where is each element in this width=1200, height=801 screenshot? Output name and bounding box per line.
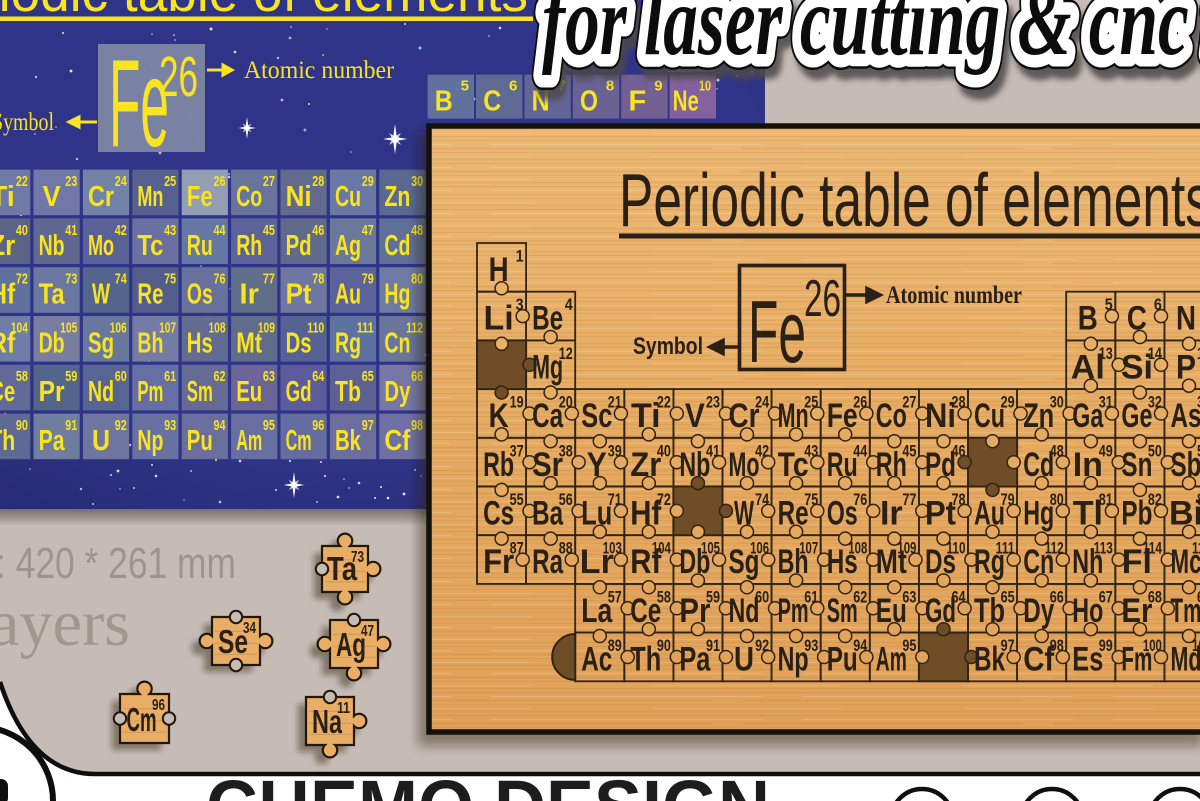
svg-text:96: 96 — [152, 697, 165, 714]
svg-text:Am: Am — [236, 425, 262, 457]
svg-text:W: W — [734, 495, 755, 533]
svg-text:106: 106 — [750, 540, 769, 558]
svg-text:Ne: Ne — [673, 86, 699, 118]
svg-text:Y: Y — [587, 446, 607, 484]
svg-text:72: 72 — [657, 491, 671, 509]
svg-text:Symbol: Symbol — [0, 109, 54, 136]
svg-text:92: 92 — [115, 417, 127, 434]
svg-text:93: 93 — [164, 417, 176, 434]
svg-text:58: 58 — [16, 368, 28, 385]
svg-text:Eu: Eu — [236, 376, 262, 408]
svg-text:N: N — [532, 86, 550, 118]
svg-text:40: 40 — [657, 442, 671, 460]
svg-text:114: 114 — [1143, 540, 1163, 558]
svg-text:32: 32 — [1148, 394, 1162, 412]
svg-text:108: 108 — [848, 540, 867, 558]
svg-text:Gd: Gd — [286, 376, 312, 408]
svg-text:56: 56 — [559, 491, 573, 509]
svg-text:63: 63 — [263, 368, 275, 385]
svg-text:24: 24 — [755, 394, 770, 412]
svg-text:Cr: Cr — [88, 181, 114, 213]
svg-text:73: 73 — [351, 549, 364, 566]
svg-text:Re: Re — [137, 279, 163, 311]
svg-text:46: 46 — [312, 222, 324, 239]
svg-text:C: C — [483, 86, 501, 118]
svg-text:40: 40 — [16, 222, 28, 239]
svg-text:B: B — [435, 86, 453, 118]
svg-text:Ti: Ti — [0, 181, 15, 213]
svg-text:60: 60 — [115, 368, 127, 385]
svg-text:104: 104 — [652, 540, 672, 558]
svg-text:63: 63 — [902, 588, 916, 606]
svg-text:Ir: Ir — [240, 279, 259, 311]
svg-text:: 420 * 261 mm: : 420 * 261 mm — [0, 539, 236, 588]
svg-text:Ag: Ag — [335, 230, 361, 262]
svg-text:96: 96 — [312, 417, 324, 434]
svg-text:Sb: Sb — [1171, 446, 1200, 484]
svg-text:for laser cutting & cnc m: for laser cutting & cnc m — [542, 0, 1200, 76]
svg-text:23: 23 — [65, 173, 77, 190]
svg-text:Sm: Sm — [187, 376, 213, 408]
svg-text:100: 100 — [1143, 637, 1162, 655]
svg-text:95: 95 — [902, 637, 916, 655]
svg-text:Atomic number: Atomic number — [886, 282, 1022, 309]
svg-text:1: 1 — [516, 248, 524, 266]
svg-text:Au: Au — [335, 279, 361, 311]
svg-text:37: 37 — [510, 442, 524, 460]
svg-text:Ni: Ni — [286, 181, 312, 213]
svg-text:68: 68 — [1148, 588, 1162, 606]
svg-text:79: 79 — [362, 271, 374, 288]
svg-text:Zr: Zr — [0, 230, 15, 262]
svg-text:97: 97 — [1001, 637, 1015, 655]
svg-text:43: 43 — [164, 222, 176, 239]
svg-text:106: 106 — [110, 319, 127, 336]
svg-text:113: 113 — [1094, 540, 1113, 558]
svg-text:Pm: Pm — [137, 376, 163, 408]
svg-text:75: 75 — [804, 491, 818, 509]
svg-text:Tm: Tm — [1171, 592, 1200, 630]
svg-text:14: 14 — [1148, 345, 1163, 363]
svg-text:22: 22 — [657, 394, 671, 412]
svg-text:74: 74 — [755, 491, 770, 509]
svg-text:P: P — [1176, 348, 1196, 386]
svg-text:81: 81 — [1099, 491, 1113, 509]
svg-text:26: 26 — [853, 394, 867, 412]
svg-text:Fe: Fe — [187, 181, 213, 213]
svg-text:76: 76 — [853, 491, 867, 509]
svg-text:109: 109 — [258, 319, 275, 336]
svg-text:89: 89 — [608, 637, 622, 655]
svg-text:Bi: Bi — [1169, 495, 1200, 533]
svg-text:107: 107 — [159, 319, 176, 336]
svg-text:Fe: Fe — [748, 282, 806, 381]
svg-text:5: 5 — [1105, 296, 1113, 314]
svg-text:41: 41 — [65, 222, 77, 239]
svg-text:Cd: Cd — [384, 230, 410, 262]
svg-text:28: 28 — [312, 173, 324, 190]
svg-text:Li: Li — [483, 300, 513, 338]
svg-text:Hg: Hg — [384, 279, 410, 311]
svg-text:Ir: Ir — [880, 495, 903, 533]
svg-text:CHEMO DESIGN: CHEMO DESIGN — [206, 765, 770, 801]
svg-text:11: 11 — [337, 700, 350, 717]
svg-text:78: 78 — [312, 271, 324, 288]
svg-text:64: 64 — [312, 368, 324, 385]
svg-text:42: 42 — [755, 442, 769, 460]
svg-text:Mo: Mo — [88, 230, 114, 262]
svg-text:91: 91 — [65, 417, 77, 434]
svg-text:62: 62 — [214, 368, 226, 385]
svg-text:61: 61 — [164, 368, 176, 385]
svg-text:Np: Np — [137, 425, 163, 457]
svg-text:24: 24 — [115, 173, 127, 190]
svg-text:Mn: Mn — [137, 181, 163, 213]
svg-text:108: 108 — [209, 319, 226, 336]
svg-text:6: 6 — [509, 78, 517, 95]
svg-text:107: 107 — [799, 540, 818, 558]
svg-text:82: 82 — [1148, 491, 1162, 509]
svg-text:60: 60 — [755, 588, 769, 606]
svg-text:80: 80 — [1050, 491, 1064, 509]
svg-text:20: 20 — [559, 394, 573, 412]
svg-text:101: 101 — [1192, 637, 1200, 655]
svg-text:97: 97 — [362, 417, 374, 434]
svg-text:76: 76 — [214, 271, 226, 288]
svg-text:98: 98 — [1050, 637, 1064, 655]
svg-text:Pt: Pt — [286, 279, 312, 311]
svg-text:50: 50 — [1148, 442, 1162, 460]
svg-text:5: 5 — [461, 78, 469, 95]
svg-text:4: 4 — [565, 296, 574, 314]
svg-text:55: 55 — [510, 491, 524, 509]
svg-text:Ta: Ta — [39, 279, 66, 311]
svg-text:Co: Co — [236, 181, 262, 213]
svg-text:Ce: Ce — [0, 376, 15, 408]
svg-text:28: 28 — [952, 394, 966, 412]
svg-text:Rh: Rh — [236, 230, 262, 262]
svg-text:73: 73 — [65, 271, 77, 288]
svg-text:ayers: ayers — [0, 587, 130, 660]
svg-text:Cm: Cm — [286, 425, 312, 457]
svg-text:92: 92 — [755, 637, 769, 655]
svg-text:N: N — [1176, 300, 1196, 338]
svg-text:19: 19 — [510, 394, 524, 412]
svg-text:93: 93 — [804, 637, 818, 655]
svg-text:26: 26 — [159, 45, 198, 109]
svg-text:31: 31 — [1099, 394, 1113, 412]
svg-text:57: 57 — [608, 588, 622, 606]
svg-text:25: 25 — [804, 394, 818, 412]
svg-text:Pd: Pd — [286, 230, 312, 262]
svg-text:6: 6 — [1154, 296, 1162, 314]
svg-text:110: 110 — [307, 319, 324, 336]
svg-text:Tb: Tb — [335, 376, 361, 408]
svg-text:64: 64 — [952, 588, 967, 606]
svg-text:103: 103 — [603, 540, 622, 558]
svg-text:Be: Be — [532, 300, 563, 338]
svg-text:72: 72 — [16, 271, 28, 288]
svg-text:Cu: Cu — [335, 181, 361, 213]
svg-text:109: 109 — [897, 540, 916, 558]
svg-text:90: 90 — [16, 417, 28, 434]
svg-text:65: 65 — [1001, 588, 1015, 606]
svg-text:Pr: Pr — [39, 376, 65, 408]
svg-text:79: 79 — [1001, 491, 1015, 509]
svg-text:111: 111 — [996, 540, 1015, 558]
svg-text:12: 12 — [559, 345, 573, 363]
svg-text:V: V — [43, 181, 62, 213]
svg-text:77: 77 — [902, 491, 916, 509]
svg-text:13: 13 — [1099, 345, 1113, 363]
svg-text:45: 45 — [263, 222, 275, 239]
svg-text:Ru: Ru — [187, 230, 213, 262]
svg-text:67: 67 — [1099, 588, 1113, 606]
svg-text:Th: Th — [0, 425, 15, 457]
svg-text:46: 46 — [952, 442, 966, 460]
svg-text:39: 39 — [608, 442, 622, 460]
svg-text:C: C — [1127, 300, 1147, 338]
svg-text:Zn: Zn — [384, 181, 410, 213]
svg-text:Nb: Nb — [39, 230, 65, 262]
svg-text:105: 105 — [60, 319, 77, 336]
svg-text:112: 112 — [1045, 540, 1064, 558]
svg-text:90: 90 — [657, 637, 671, 655]
svg-text:47: 47 — [362, 222, 374, 239]
svg-text:77: 77 — [263, 271, 275, 288]
svg-text:61: 61 — [804, 588, 818, 606]
svg-text:47: 47 — [361, 623, 374, 640]
svg-text:B: B — [1078, 300, 1098, 338]
svg-text:Tc: Tc — [137, 230, 163, 262]
svg-text:111: 111 — [357, 319, 374, 336]
svg-text:95: 95 — [263, 417, 275, 434]
svg-text:44: 44 — [214, 222, 226, 239]
svg-text:94: 94 — [853, 637, 868, 655]
svg-text:F: F — [629, 86, 647, 118]
svg-text:Bk: Bk — [335, 425, 362, 457]
svg-text:59: 59 — [65, 368, 77, 385]
svg-text:62: 62 — [853, 588, 867, 606]
svg-text:48: 48 — [1050, 442, 1064, 460]
svg-text:43: 43 — [804, 442, 818, 460]
svg-text:26: 26 — [804, 270, 841, 328]
svg-text:99: 99 — [1099, 637, 1113, 655]
svg-text:Atomic number: Atomic number — [244, 57, 395, 84]
svg-text:U: U — [734, 641, 754, 679]
svg-text:104: 104 — [11, 319, 28, 336]
svg-text:66: 66 — [1050, 588, 1064, 606]
svg-text:K: K — [489, 397, 509, 435]
svg-text:75: 75 — [164, 271, 176, 288]
svg-text:Hf: Hf — [0, 279, 15, 311]
svg-text:H: H — [489, 251, 509, 289]
svg-text:94: 94 — [214, 417, 226, 434]
svg-text:105: 105 — [701, 540, 720, 558]
svg-text:22: 22 — [16, 173, 28, 190]
svg-text:87: 87 — [510, 540, 524, 558]
svg-text:41: 41 — [706, 442, 720, 460]
svg-text:74: 74 — [115, 271, 127, 288]
svg-text:Symbol: Symbol — [633, 333, 703, 360]
svg-text:Pa: Pa — [39, 425, 66, 457]
svg-text:Periodic table of elements: Periodic table of elements — [619, 158, 1200, 242]
svg-text:58: 58 — [657, 588, 671, 606]
svg-text:42: 42 — [115, 222, 127, 239]
svg-text:Pu: Pu — [187, 425, 213, 457]
svg-text:26: 26 — [214, 173, 226, 190]
svg-text:59: 59 — [706, 588, 720, 606]
svg-text:Cf: Cf — [384, 425, 410, 457]
svg-text:23: 23 — [706, 394, 720, 412]
svg-text:115: 115 — [1192, 540, 1200, 558]
svg-text:71: 71 — [608, 491, 622, 509]
svg-text:Dy: Dy — [384, 376, 410, 408]
svg-text:29: 29 — [1001, 394, 1015, 412]
svg-text:91: 91 — [706, 637, 720, 655]
svg-text:25: 25 — [164, 173, 176, 190]
svg-text:3: 3 — [516, 296, 524, 314]
svg-text:As: As — [1171, 397, 1200, 435]
svg-text:U: U — [92, 425, 110, 457]
svg-text:27: 27 — [263, 173, 275, 190]
svg-text:45: 45 — [902, 442, 916, 460]
svg-text:W: W — [92, 279, 110, 311]
svg-text:38: 38 — [559, 442, 573, 460]
svg-text:65: 65 — [362, 368, 374, 385]
svg-text:34: 34 — [243, 620, 256, 637]
svg-text:O: O — [580, 86, 598, 118]
svg-text:110: 110 — [947, 540, 966, 558]
svg-text:30: 30 — [1050, 394, 1064, 412]
svg-text:78: 78 — [952, 491, 966, 509]
svg-text:Nd: Nd — [88, 376, 114, 408]
svg-text:44: 44 — [853, 442, 868, 460]
svg-text:21: 21 — [608, 394, 622, 412]
svg-text:27: 27 — [902, 394, 916, 412]
svg-text:V: V — [685, 397, 705, 435]
svg-text:88: 88 — [559, 540, 573, 558]
svg-text:29: 29 — [362, 173, 374, 190]
svg-text:Os: Os — [187, 279, 213, 311]
svg-text:49: 49 — [1099, 442, 1113, 460]
